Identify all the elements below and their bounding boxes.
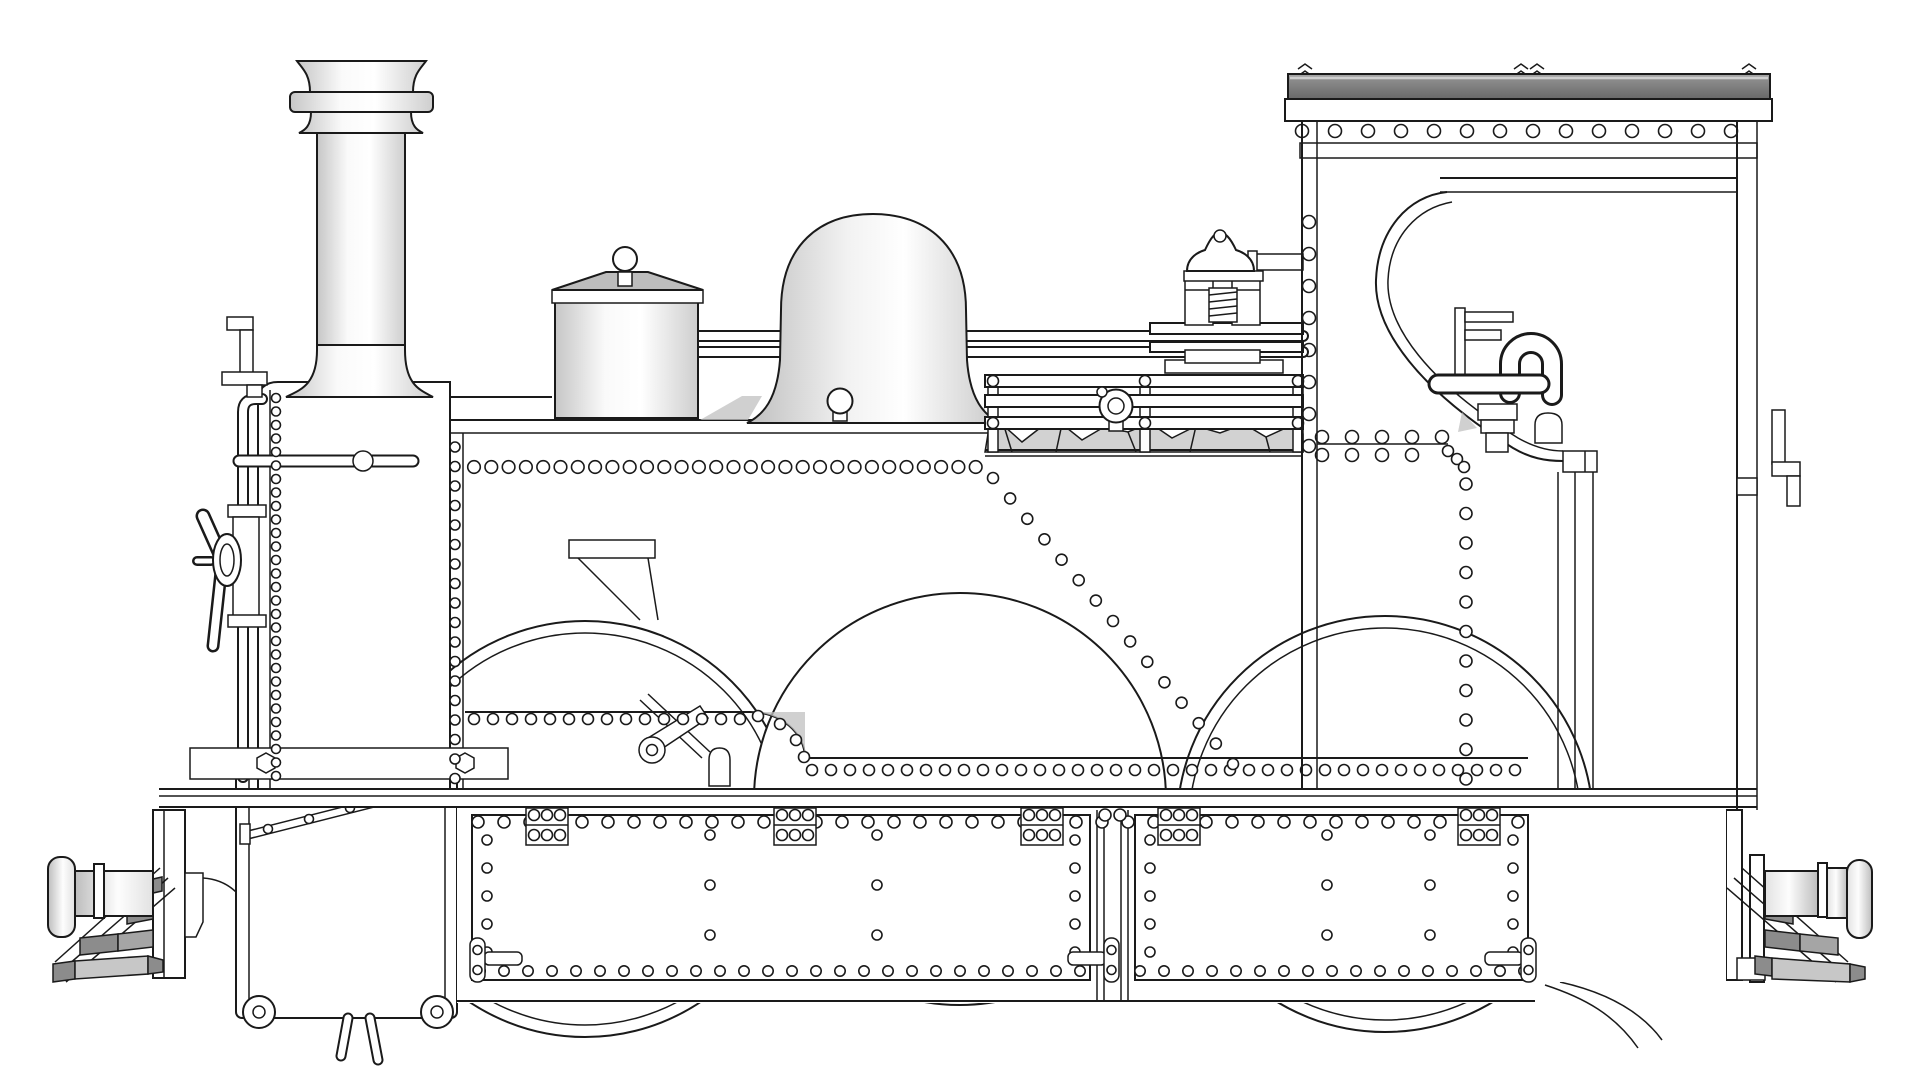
rear-lamp-bracket bbox=[1772, 410, 1800, 506]
rear-brake-hose bbox=[1560, 982, 1662, 1040]
firehole-slot bbox=[1535, 413, 1562, 443]
rear-buffer bbox=[1765, 860, 1872, 938]
roof-fascia bbox=[1285, 99, 1772, 121]
chimney-cap bbox=[297, 61, 426, 92]
latch-pin bbox=[484, 952, 522, 965]
step-tread bbox=[1755, 956, 1772, 976]
footplate bbox=[159, 789, 1757, 807]
tank-step bbox=[569, 540, 658, 620]
rear-buffer-head bbox=[1847, 860, 1872, 938]
step-tread bbox=[53, 961, 75, 982]
cylinder-cover-boss bbox=[243, 996, 275, 1028]
cab-pipework bbox=[1438, 308, 1562, 452]
saddle-band bbox=[190, 748, 508, 779]
chimney bbox=[286, 61, 433, 397]
lamp-bracket-front bbox=[222, 317, 267, 397]
locomotive-drawing bbox=[0, 0, 1920, 1078]
front-buffer-head bbox=[48, 857, 75, 937]
tank-bracket-slot bbox=[709, 748, 730, 786]
front-underframe bbox=[48, 810, 263, 988]
top-feed-cylinder bbox=[552, 247, 703, 418]
front-buffer-beam bbox=[153, 810, 203, 978]
latch-pin bbox=[1068, 952, 1106, 965]
safety-valve bbox=[1184, 230, 1303, 325]
step-tread bbox=[1800, 934, 1838, 955]
rear-brake-hose bbox=[1545, 985, 1638, 1048]
latch-pin bbox=[1485, 952, 1523, 965]
smokebox-door-handwheel bbox=[197, 505, 266, 646]
step-tread bbox=[1850, 964, 1865, 982]
coal-rack bbox=[985, 323, 1304, 456]
step-tread bbox=[80, 934, 118, 955]
step-tread bbox=[118, 930, 153, 951]
steam-dome bbox=[747, 214, 1000, 423]
boiler-shade bbox=[700, 396, 762, 420]
step-tread bbox=[148, 956, 163, 974]
step-tread bbox=[1765, 930, 1800, 951]
rear-wall-band bbox=[1737, 478, 1757, 495]
latch-plate bbox=[1521, 938, 1536, 982]
chimney-cap-rim bbox=[290, 92, 433, 112]
valve-flange bbox=[1478, 404, 1517, 420]
rack-rail bbox=[985, 395, 1303, 407]
cylinder-cover-boss bbox=[421, 996, 453, 1028]
step-tread bbox=[75, 956, 148, 979]
chimney-base-flare bbox=[286, 340, 433, 397]
front-buffer bbox=[48, 857, 153, 937]
cab-sheet-top-band bbox=[1300, 143, 1757, 158]
latch-plate bbox=[470, 938, 485, 982]
latch-plate bbox=[1104, 938, 1119, 982]
cab-opening-lip bbox=[1563, 451, 1597, 472]
step-tread bbox=[1772, 958, 1850, 982]
drawing-canvas bbox=[0, 0, 1920, 1078]
cab-handrail-bracket bbox=[1455, 308, 1465, 376]
valve-rod-to-cab bbox=[1250, 254, 1303, 270]
handrail-knob bbox=[353, 451, 373, 471]
lid-ball-finial bbox=[613, 247, 637, 271]
